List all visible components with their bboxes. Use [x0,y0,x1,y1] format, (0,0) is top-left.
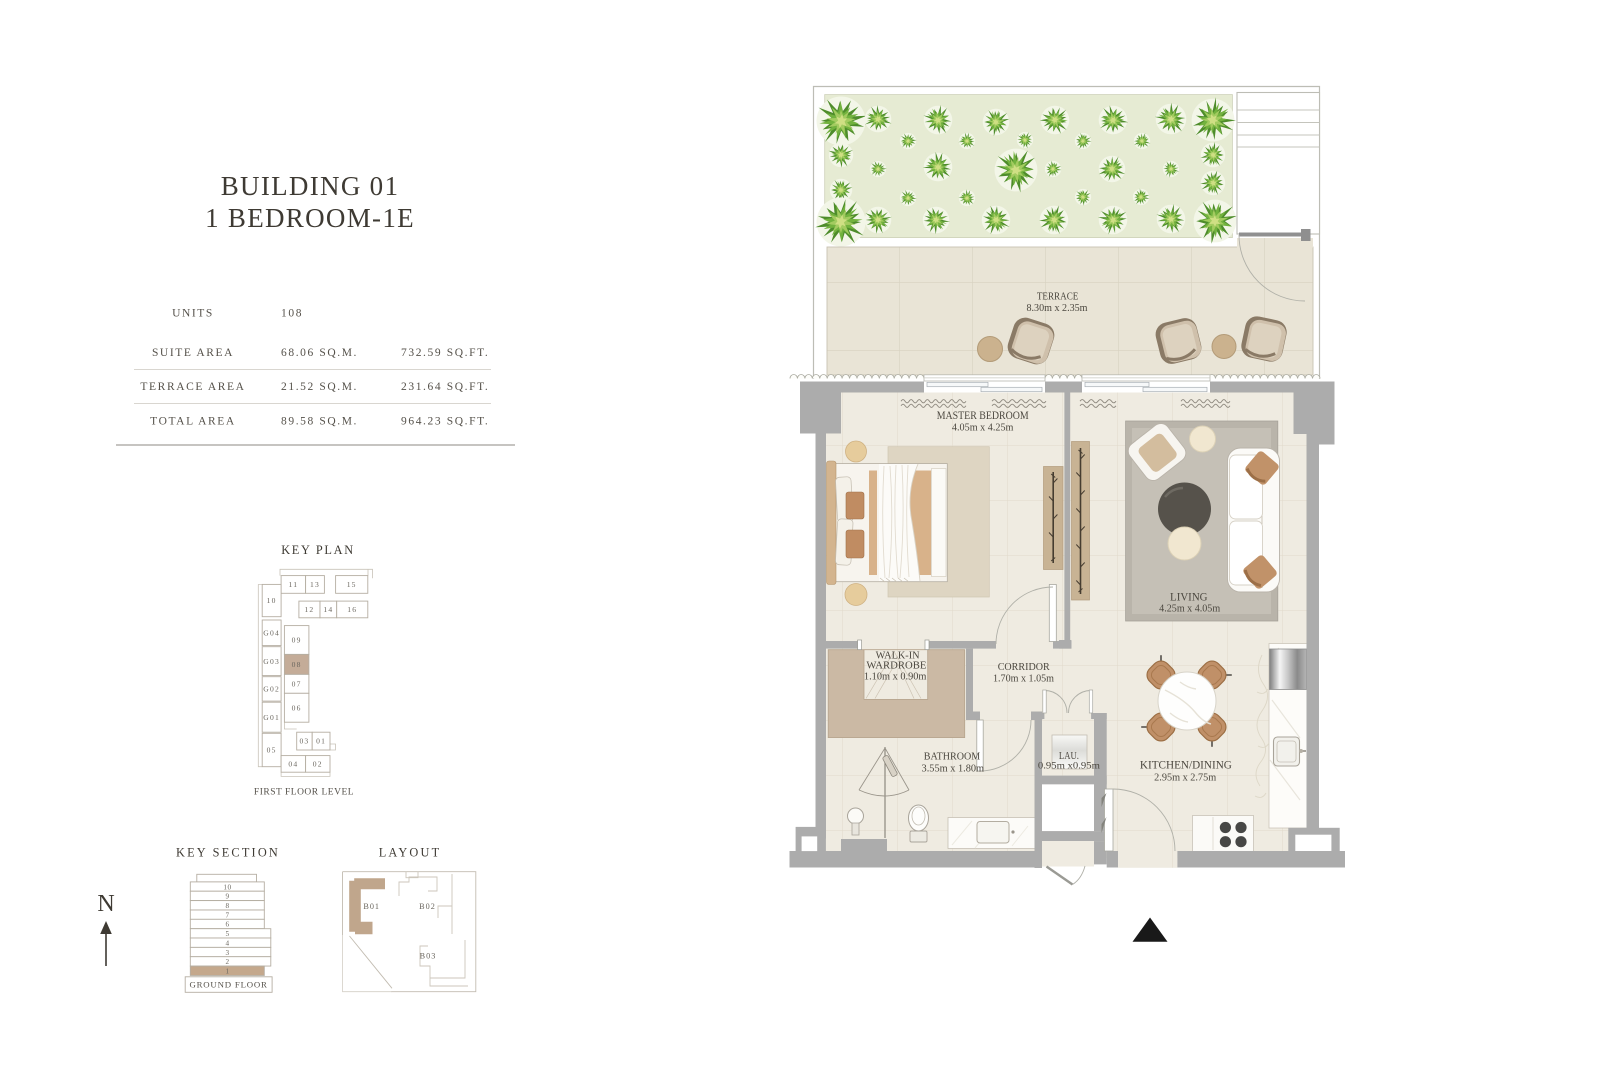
svg-text:TOTAL AREA: TOTAL AREA [150,416,236,428]
svg-text:BATHROOM: BATHROOM [924,751,981,763]
svg-text:UNITS: UNITS [172,308,214,320]
svg-text:7: 7 [225,911,229,919]
svg-text:4.05m x 4.25m: 4.05m x 4.25m [952,423,1014,434]
svg-text:8.30m x 2.35m: 8.30m x 2.35m [1027,303,1088,314]
svg-text:B03: B03 [420,952,437,961]
svg-text:TERRACE: TERRACE [1037,292,1079,303]
svg-text:G01: G01 [263,713,280,722]
svg-text:07: 07 [292,679,302,688]
svg-text:04: 04 [288,760,298,769]
svg-text:16: 16 [347,605,357,614]
svg-text:B01: B01 [363,902,380,911]
svg-text:2: 2 [225,958,229,966]
svg-text:CORRIDOR: CORRIDOR [998,661,1051,673]
svg-text:21.52 SQ.M.: 21.52 SQ.M. [281,381,358,393]
svg-text:10: 10 [223,883,231,891]
svg-text:1 BEDROOM-1E: 1 BEDROOM-1E [205,203,415,233]
svg-text:3.55m x 1.80m: 3.55m x 1.80m [922,763,985,774]
svg-text:14: 14 [323,605,333,614]
svg-text:108: 108 [281,308,303,320]
svg-text:5: 5 [225,930,229,938]
svg-text:231.64 SQ.FT.: 231.64 SQ.FT. [401,381,489,393]
svg-text:11: 11 [288,580,298,589]
svg-text:10: 10 [267,596,277,605]
svg-text:2.95m x 2.75m: 2.95m x 2.75m [1154,772,1216,783]
svg-text:TERRACE AREA: TERRACE AREA [140,381,245,393]
svg-text:03: 03 [299,737,309,746]
svg-text:09: 09 [292,636,302,645]
svg-text:B02: B02 [419,902,436,911]
svg-text:G04: G04 [263,628,280,637]
svg-text:4: 4 [225,939,229,947]
svg-text:68.06 SQ.M.: 68.06 SQ.M. [281,347,358,359]
svg-text:15: 15 [347,580,357,589]
svg-text:1.10m x 0.90m: 1.10m x 0.90m [864,672,927,683]
svg-text:GROUND FLOOR: GROUND FLOOR [189,979,267,989]
svg-text:01: 01 [316,737,326,746]
svg-text:N: N [97,891,114,917]
svg-text:KITCHEN/DINING: KITCHEN/DINING [1140,760,1232,772]
svg-text:6: 6 [225,921,229,929]
svg-text:WARDROBE: WARDROBE [866,660,926,672]
svg-text:05: 05 [267,746,277,755]
svg-text:12: 12 [304,605,314,614]
svg-text:964.23 SQ.FT.: 964.23 SQ.FT. [401,416,489,428]
svg-text:MASTER BEDROOM: MASTER BEDROOM [937,408,1029,422]
svg-text:LIVING: LIVING [1170,590,1208,604]
svg-text:SUITE AREA: SUITE AREA [152,347,234,359]
svg-text:BUILDING 01: BUILDING 01 [221,171,400,201]
svg-text:8: 8 [225,902,229,910]
svg-text:02: 02 [313,760,323,769]
svg-text:08: 08 [292,660,302,669]
svg-text:4.25m x 4.05m: 4.25m x 4.05m [1159,603,1220,614]
svg-text:KEY SECTION: KEY SECTION [176,846,280,860]
svg-text:FIRST FLOOR LEVEL: FIRST FLOOR LEVEL [254,788,354,798]
svg-text:KEY PLAN: KEY PLAN [281,543,355,557]
svg-text:1.70m x 1.05m: 1.70m x 1.05m [993,674,1054,685]
svg-text:89.58 SQ.M.: 89.58 SQ.M. [281,416,358,428]
svg-text:06: 06 [292,703,302,712]
svg-text:LAU.: LAU. [1059,751,1079,762]
svg-text:G02: G02 [263,685,280,694]
svg-text:1: 1 [225,967,229,975]
svg-text:13: 13 [310,580,320,589]
svg-text:3: 3 [225,949,229,957]
svg-text:9: 9 [225,893,229,901]
svg-text:0.95m x0.95m: 0.95m x0.95m [1038,761,1101,771]
svg-text:LAYOUT: LAYOUT [379,846,442,860]
svg-text:732.59 SQ.FT.: 732.59 SQ.FT. [401,347,489,359]
svg-text:G03: G03 [263,657,280,666]
